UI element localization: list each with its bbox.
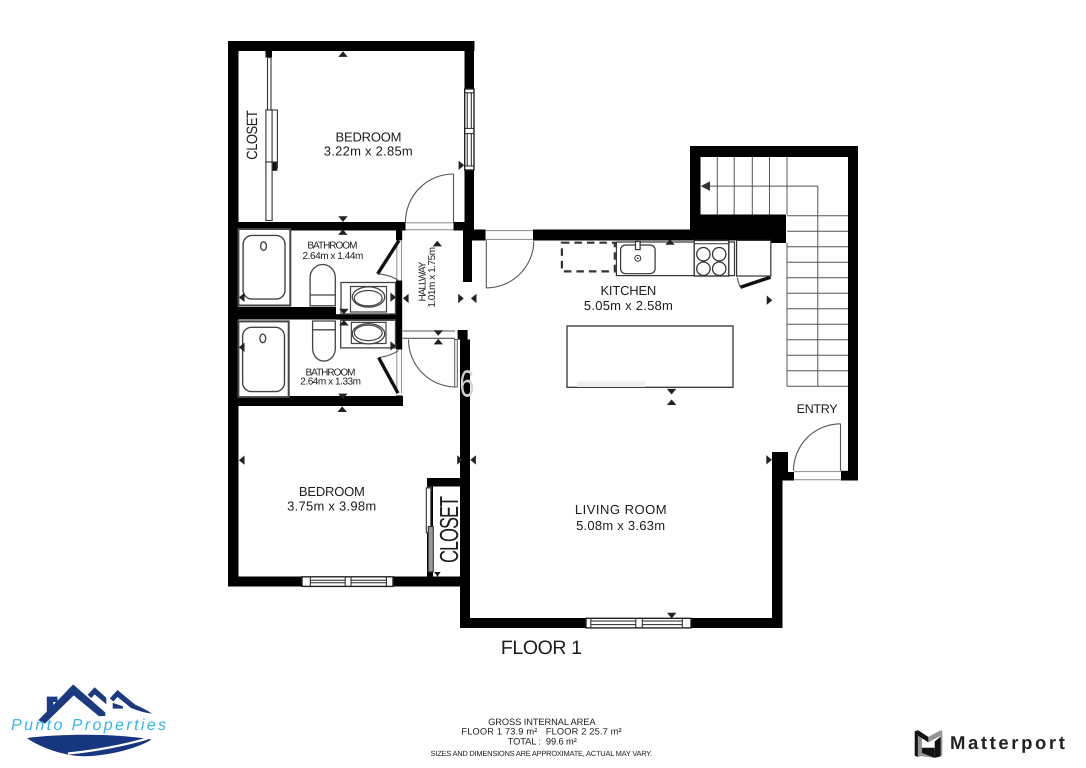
svg-text:KITCHEN: KITCHEN (600, 283, 656, 298)
svg-text:BEDROOM: BEDROOM (336, 129, 402, 144)
svg-text:Matterport: Matterport (950, 732, 1067, 753)
svg-text:CLOSET: CLOSET (243, 110, 260, 160)
svg-text:BEDROOM: BEDROOM (299, 484, 365, 499)
svg-text:1.01m x 1.75m: 1.01m x 1.75m (427, 247, 438, 307)
svg-text:3.22m x 2.85m: 3.22m x 2.85m (324, 143, 413, 158)
svg-text:2.64m x 1.44m: 2.64m x 1.44m (303, 251, 363, 262)
svg-text:3.75m x 3.98m: 3.75m x 3.98m (287, 499, 376, 514)
svg-text:TOTAL : 99.6 m²: TOTAL : 99.6 m² (508, 736, 577, 746)
svg-text:FLOOR 1: FLOOR 1 (501, 637, 582, 659)
svg-text:SIZES AND DIMENSIONS ARE APPRO: SIZES AND DIMENSIONS ARE APPROXIMATE, AC… (431, 749, 652, 758)
svg-text:5.05m x 2.58m: 5.05m x 2.58m (584, 298, 673, 313)
svg-text:GROSS INTERNAL AREA: GROSS INTERNAL AREA (488, 717, 596, 727)
svg-text:6: 6 (460, 364, 475, 406)
svg-text:Punto Properties: Punto Properties (11, 717, 169, 734)
svg-text:5.08m x 3.63m: 5.08m x 3.63m (576, 518, 665, 533)
svg-text:FLOOR 1 73.9 m² FLOOR 2 25.7: FLOOR 1 73.9 m² FLOOR 2 25.7 m² (461, 726, 621, 736)
svg-text:LIVING ROOM: LIVING ROOM (575, 502, 667, 517)
svg-text:ENTRY: ENTRY (797, 402, 839, 416)
svg-text:2.64m x 1.33m: 2.64m x 1.33m (300, 377, 360, 388)
svg-text:CLOSET: CLOSET (435, 496, 464, 563)
